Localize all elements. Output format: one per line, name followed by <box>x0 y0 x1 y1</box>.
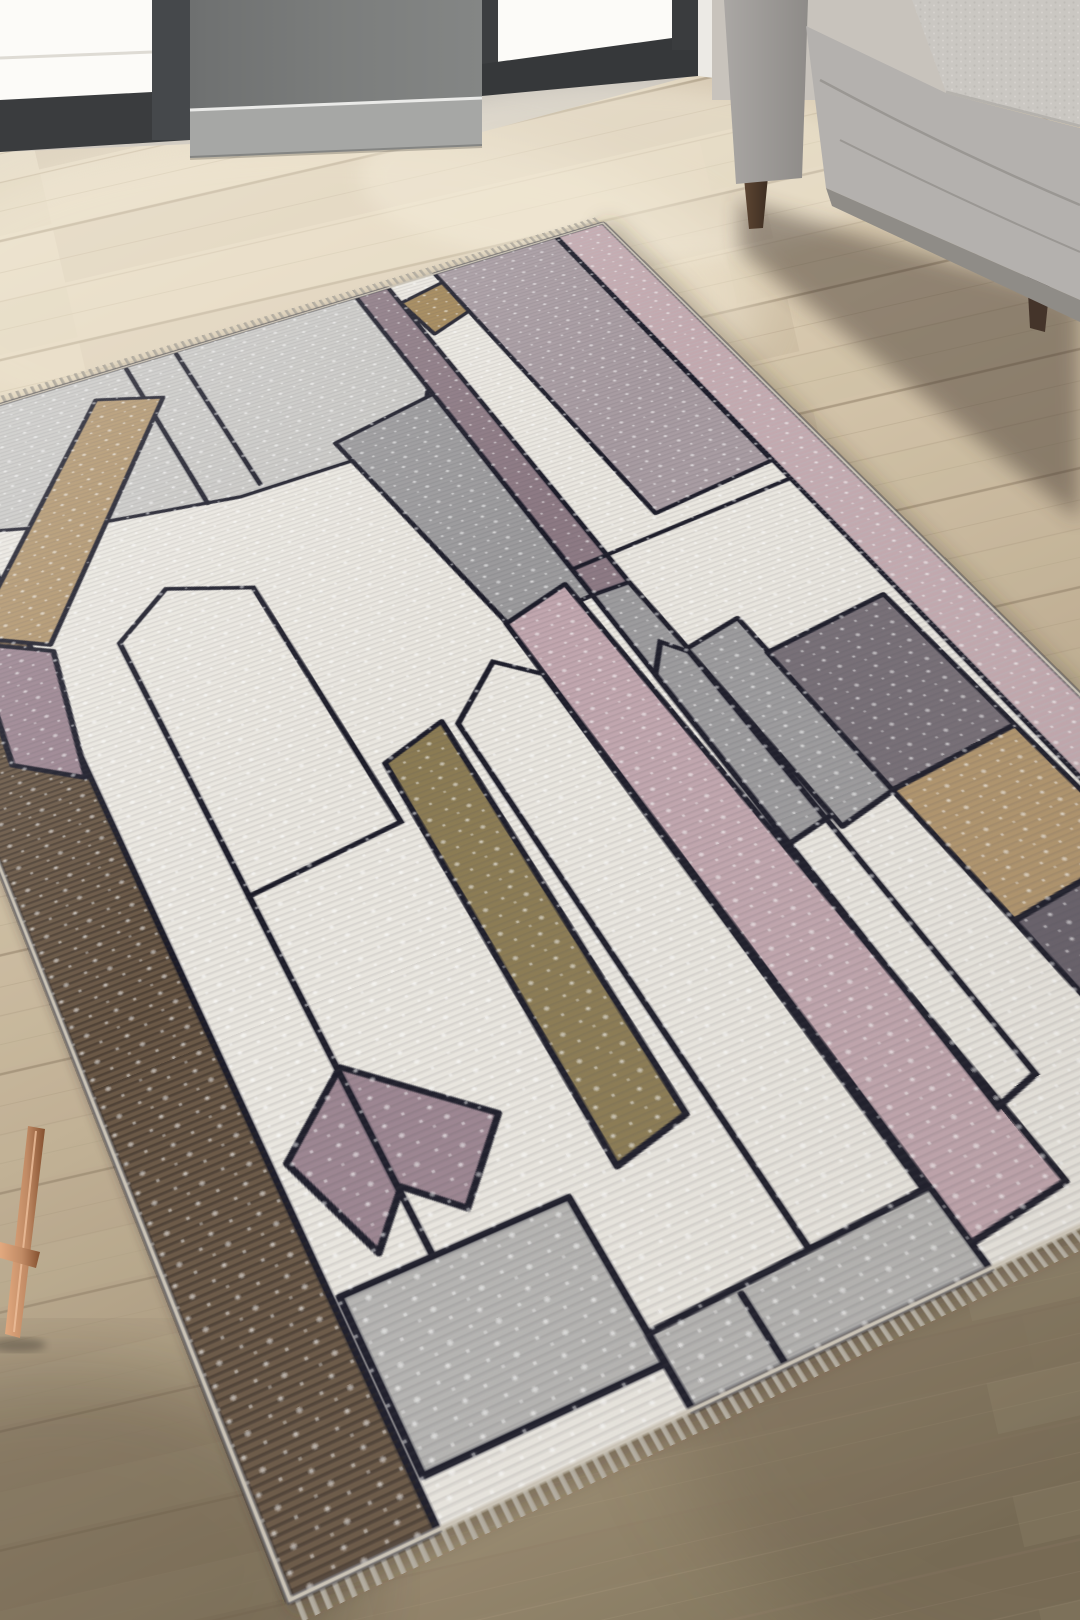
sofa-arm <box>724 0 808 184</box>
window-trim <box>698 0 714 78</box>
wall-pillar <box>190 0 482 158</box>
living-room-scene <box>0 0 1080 1620</box>
window-left <box>0 0 190 152</box>
window-frame-post <box>152 0 190 140</box>
